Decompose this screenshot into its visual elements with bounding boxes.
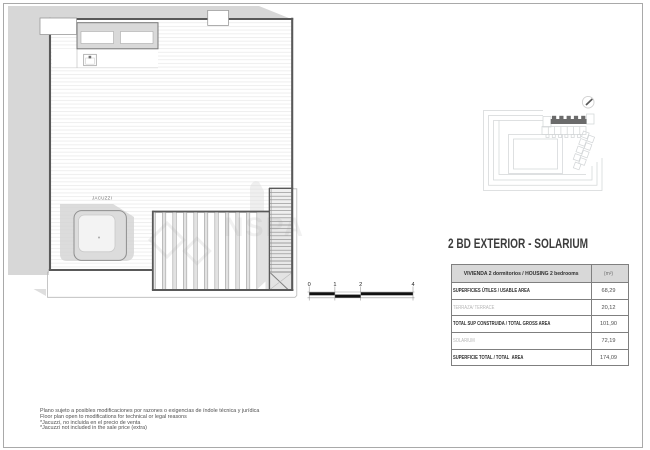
svg-text:2: 2 <box>359 282 362 288</box>
svg-text:1: 1 <box>333 282 336 288</box>
svg-text:JACUZZI: JACUZZI <box>92 196 112 201</box>
svg-text:4: 4 <box>411 282 414 288</box>
svg-text:0: 0 <box>308 282 311 288</box>
